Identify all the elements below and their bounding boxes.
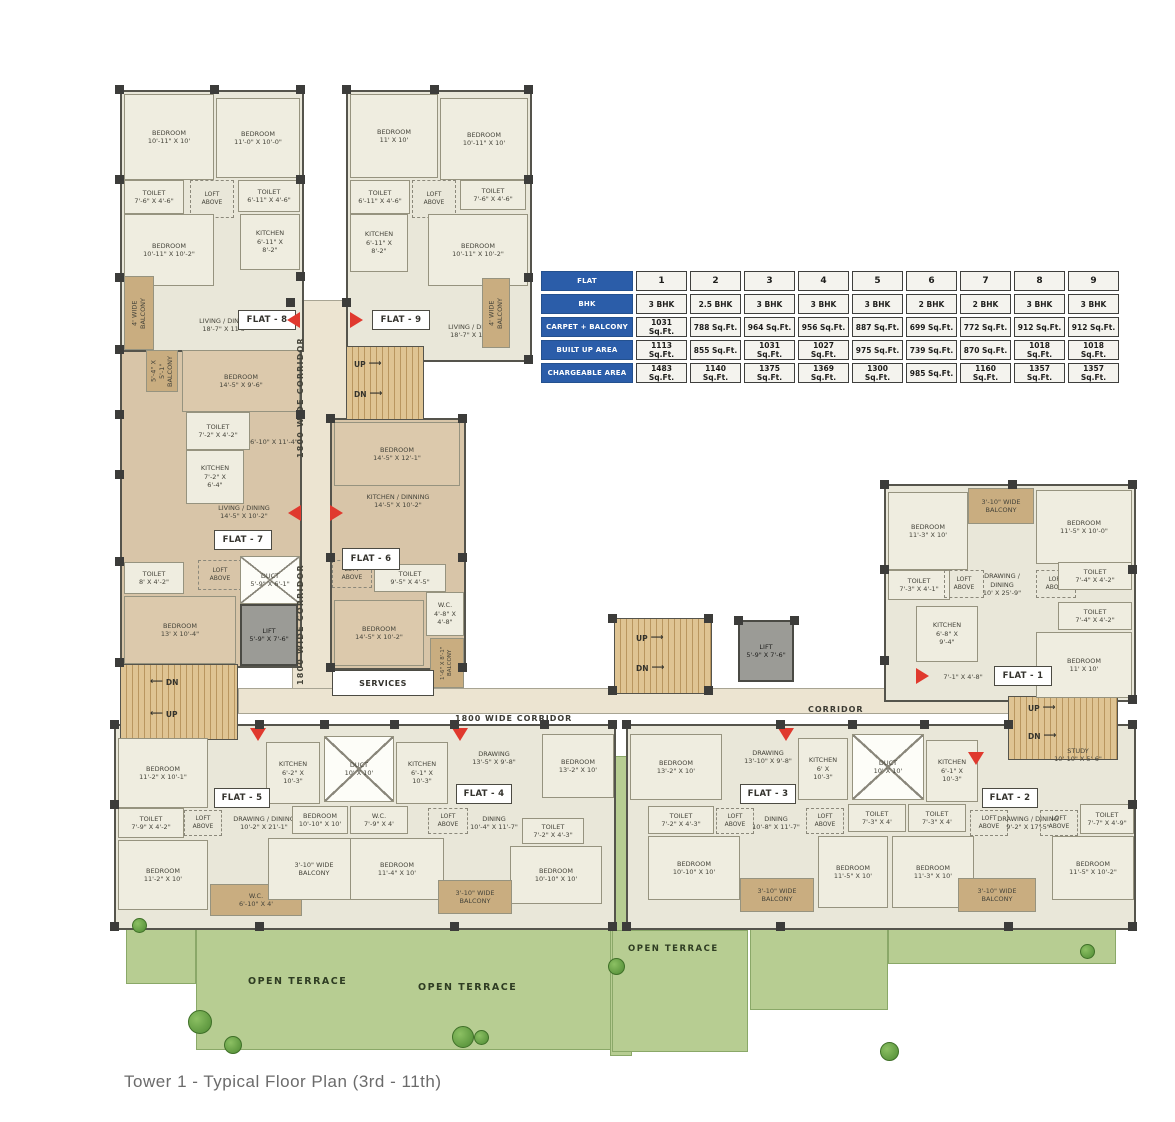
table-cell: 3 BHK — [1068, 294, 1119, 314]
entry-arrow-flat7 — [288, 505, 301, 521]
room-toilet: TOILET 7'-2" X 4'-3" — [648, 806, 714, 834]
table-cell: 1018 Sq.Ft. — [1014, 340, 1065, 360]
flat9-label: FLAT - 9 — [372, 310, 430, 330]
table-cell: 3 BHK — [852, 294, 903, 314]
table-cell: 1369 Sq.Ft. — [798, 363, 849, 383]
tree-icon — [474, 1030, 489, 1045]
wall-column — [608, 720, 617, 729]
stair-up-label: UP⟶ — [1028, 704, 1056, 713]
corridor-label-vertical: 1800 WIDE CORRIDOR — [296, 330, 305, 465]
table-cell: 788 Sq.Ft. — [690, 317, 741, 337]
arrow-right-icon: ⟶ — [651, 634, 664, 643]
room-dimension: 7'-1" X 4'-8" — [934, 670, 992, 684]
room-bedroom: BEDROOM 11' X 10' — [350, 94, 438, 178]
room-bedroom: BEDROOM 13'-2" X 10' — [630, 734, 722, 800]
wall-column — [540, 720, 549, 729]
entry-arrow-flat4 — [452, 728, 468, 741]
wall-column — [110, 922, 119, 931]
room-bedroom: BEDROOM 11'-0" X 10'-0" — [216, 98, 300, 178]
room-wc: BEDROOM 10'-10" X 10' — [292, 806, 348, 834]
open-terrace-label: OPEN TERRACE — [248, 976, 347, 987]
wall-column — [1128, 480, 1137, 489]
room-toilet: TOILET 8' X 4'-2" — [124, 562, 184, 594]
wall-column — [115, 345, 124, 354]
table-cell: 699 Sq.Ft. — [906, 317, 957, 337]
corridor-label-horizontal: 1800 WIDE CORRIDOR — [455, 714, 572, 723]
wall-column — [880, 656, 889, 665]
table-cell: 1300 Sq.Ft. — [852, 363, 903, 383]
stair-dn-label: DN⟶ — [636, 664, 664, 673]
wall-column — [1128, 720, 1137, 729]
table-header-cell: 5 — [852, 271, 903, 291]
wall-column — [115, 557, 124, 566]
wall-column — [110, 800, 119, 809]
flat1-label: FLAT - 1 — [994, 666, 1052, 686]
table-cell: 3 BHK — [636, 294, 687, 314]
table-cell: 1113 Sq.Ft. — [636, 340, 687, 360]
table-cell: 855 Sq.Ft. — [690, 340, 741, 360]
table-cell: 3 BHK — [1014, 294, 1065, 314]
room-bedroom: BEDROOM 11' X 10' — [1036, 632, 1132, 698]
arrow-right-icon: ⟶ — [369, 360, 382, 369]
stair-dn-label: DN⟶ — [354, 390, 382, 399]
room-bedroom: BEDROOM 13'-2" X 10' — [542, 734, 614, 798]
wall-column — [734, 616, 743, 625]
open-terrace-area — [750, 918, 888, 1010]
table-row-chargeable: CHARGEABLE AREA 1483 Sq.Ft. 1140 Sq.Ft. … — [541, 363, 1119, 383]
wall-column — [880, 480, 889, 489]
table-row-builtup: BUILT UP AREA 1113 Sq.Ft. 855 Sq.Ft. 103… — [541, 340, 1119, 360]
wall-column — [342, 85, 351, 94]
corridor-label-vertical: 1800 WIDE CORRIDOR — [296, 555, 305, 695]
staircase-left — [120, 664, 238, 740]
room-bedroom: BEDROOM 11'-4" X 10' — [350, 838, 444, 900]
wall-column — [115, 175, 124, 184]
wall-column — [1004, 922, 1013, 931]
entry-arrow-flat8 — [287, 312, 300, 328]
room-toilet: TOILET 7'-6" X 4'-6" — [460, 180, 526, 210]
flat3-label: FLAT - 3 — [740, 784, 796, 804]
room-bedroom: BEDROOM 14'-5" X 10'-2" — [334, 600, 424, 666]
loft-above: LOFT ABOVE — [190, 180, 234, 218]
stair-up-label: ⟵UP — [150, 710, 178, 719]
room-balcony: 3'-10" WIDE BALCONY — [740, 878, 814, 912]
table-header-cell: 7 — [960, 271, 1011, 291]
table-header-row: FLAT 1 2 3 4 5 6 7 8 9 — [541, 271, 1119, 291]
lift-central: LIFT 5'-9" X 7'-6" — [738, 620, 794, 682]
wall-column — [622, 720, 631, 729]
wall-column — [115, 410, 124, 419]
room-bedroom: BEDROOM 11'-5" X 10' — [818, 836, 888, 908]
wall-column — [524, 85, 533, 94]
table-header-cell: 9 — [1068, 271, 1119, 291]
wall-column — [255, 720, 264, 729]
stair-dn-label: DN⟶ — [1028, 732, 1056, 741]
flat6-label: FLAT - 6 — [342, 548, 400, 570]
tree-icon — [1080, 944, 1095, 959]
stair-up-label: UP⟶ — [636, 634, 664, 643]
tree-icon — [188, 1010, 212, 1034]
table-cell: 1357 Sq.Ft. — [1068, 363, 1119, 383]
room-bedroom: BEDROOM 11'-5" X 10'-2" — [1052, 836, 1134, 900]
tree-icon — [608, 958, 625, 975]
room-balcony: 3'-10" WIDE BALCONY — [958, 878, 1036, 912]
room-toilet: TOILET 7'-2" X 4'-2" — [186, 412, 250, 450]
wall-column — [286, 298, 295, 307]
room-bedroom: BEDROOM 10'-11" X 10' — [440, 98, 528, 180]
table-cell: 912 Sq.Ft. — [1068, 317, 1119, 337]
wall-column — [608, 922, 617, 931]
room-bedroom: 3'-10" WIDE BALCONY — [268, 838, 360, 900]
wall-column — [1128, 922, 1137, 931]
room-bedroom: BEDROOM 10'-10" X 10' — [510, 846, 602, 904]
room-toilet: TOILET 7'-3" X 4'-1" — [888, 570, 950, 600]
table-cell: 1483 Sq.Ft. — [636, 363, 687, 383]
wall-column — [880, 565, 889, 574]
arrow-right-icon: ⟶ — [1043, 704, 1056, 713]
entry-arrow-flat1 — [916, 668, 929, 684]
room-kitchen: KITCHEN 6'-1" X 10'-3" — [396, 742, 448, 804]
flat5-label: FLAT - 5 — [214, 788, 270, 808]
table-row-label: CHARGEABLE AREA — [541, 363, 633, 383]
lift: LIFT 5'-9" X 7'-6" — [240, 604, 298, 666]
loft-above: LOFT ABOVE — [806, 808, 844, 834]
room-bedroom: BEDROOM 10'-10" X 10' — [648, 836, 740, 900]
up-label: UP — [354, 360, 366, 369]
dn-label: DN — [636, 664, 649, 673]
table-cell: 870 Sq.Ft. — [960, 340, 1011, 360]
wall-column — [776, 720, 785, 729]
wall-column — [1004, 720, 1013, 729]
table-cell: 1375 Sq.Ft. — [744, 363, 795, 383]
table-row-label: CARPET + BALCONY — [541, 317, 633, 337]
dn-label: DN — [354, 390, 367, 399]
room-dimension: 6'-10" X 11'-4" — [248, 428, 300, 456]
stair-dn-label: ⟵DN — [150, 678, 178, 687]
table-cell: 975 Sq.Ft. — [852, 340, 903, 360]
flat7-label: FLAT - 7 — [214, 530, 272, 550]
room-bedroom: BEDROOM 10'-11" X 10'-2" — [428, 214, 528, 286]
room-balcony: 3'-10" WIDE BALCONY — [438, 880, 512, 914]
wall-column — [1128, 800, 1137, 809]
room-kitchen: KITCHEN 6'-8" X 9'-4" — [916, 606, 978, 662]
wall-column — [326, 663, 335, 672]
table-cell: 739 Sq.Ft. — [906, 340, 957, 360]
room-wc: W.C. 4'-8" X 4'-8" — [426, 592, 464, 636]
table-row-label: BUILT UP AREA — [541, 340, 633, 360]
wall-column — [608, 614, 617, 623]
wall-column — [1128, 695, 1137, 704]
wall-column — [326, 414, 335, 423]
room-bedroom: BEDROOM 11'-5" X 10'-0" — [1036, 490, 1132, 564]
staircase-central — [614, 618, 712, 694]
room-bedroom: BEDROOM 11'-2" X 10' — [118, 840, 208, 910]
wall-column — [296, 410, 305, 419]
room-toilet: TOILET 7'-4" X 4'-2" — [1058, 602, 1132, 630]
stair-up-label: UP⟶ — [354, 360, 382, 369]
plan-caption: Tower 1 - Typical Floor Plan (3rd - 11th… — [124, 1072, 442, 1092]
wall-column — [296, 175, 305, 184]
floor-plan-canvas: OPEN TERRACE OPEN TERRACE OPEN TERRACE O… — [0, 0, 1175, 1122]
duct: DUCT 10' X 10' — [852, 734, 924, 800]
table-cell: 1140 Sq.Ft. — [690, 363, 741, 383]
tree-icon — [880, 1042, 899, 1061]
room-toilet: TOILET 7'-3" X 4' — [908, 804, 966, 832]
table-header-cell: 6 — [906, 271, 957, 291]
wall-column — [1008, 480, 1017, 489]
room-living-dining: LIVING / DINING 18'-7" X 11'-4" — [420, 316, 528, 346]
table-cell: 985 Sq.Ft. — [906, 363, 957, 383]
entry-arrow-flat2 — [968, 752, 984, 765]
room-toilet: TOILET 7'-3" X 4' — [848, 804, 906, 832]
room-kitchen: KITCHEN 6'-2" X 10'-3" — [266, 742, 320, 804]
wall-column — [430, 85, 439, 94]
room-toilet: TOILET 6'-11" X 4'-6" — [350, 180, 410, 214]
arrow-right-icon: ⟶ — [1044, 732, 1057, 741]
open-terrace-label: OPEN TERRACE — [418, 982, 517, 993]
wall-column — [704, 614, 713, 623]
table-corner: FLAT — [541, 271, 633, 291]
wall-column — [458, 663, 467, 672]
table-header-cell: 1 — [636, 271, 687, 291]
duct: DUCT 5'-9" X 6'-1" — [240, 556, 300, 604]
dn-label: DN — [1028, 732, 1041, 741]
duct: DUCT 10' X 10' — [324, 736, 394, 802]
wall-column — [848, 720, 857, 729]
up-label: UP — [636, 634, 648, 643]
table-cell: 1357 Sq.Ft. — [1014, 363, 1065, 383]
wall-column — [110, 720, 119, 729]
room-kitchen: KITCHEN 7'-2" X 6'-4" — [186, 450, 244, 504]
arrow-right-icon: ⟶ — [370, 390, 383, 399]
room-toilet: TOILET 6'-11" X 4'-6" — [238, 180, 300, 212]
room-bedroom: BEDROOM 14'-5" X 9'-6" — [182, 350, 300, 412]
wall-column — [524, 175, 533, 184]
wall-column — [608, 686, 617, 695]
room-study: STUDY 10'-10" X 5'-6" — [1034, 742, 1122, 768]
arrow-left-icon: ⟵ — [150, 678, 163, 687]
table-header-cell: 4 — [798, 271, 849, 291]
tree-icon — [132, 918, 147, 933]
arrow-right-icon: ⟶ — [652, 664, 665, 673]
services-room: SERVICES — [332, 670, 434, 696]
room-kitchen: KITCHEN 6'-11" X 8'-2" — [240, 214, 300, 270]
wall-column — [524, 273, 533, 282]
wall-column — [326, 553, 335, 562]
table-cell: 2 BHK — [960, 294, 1011, 314]
table-cell: 1027 Sq.Ft. — [798, 340, 849, 360]
wall-column — [622, 922, 631, 931]
wall-column — [790, 616, 799, 625]
staircase-mid-top — [346, 346, 424, 420]
table-cell: 2.5 BHK — [690, 294, 741, 314]
wall-column — [458, 414, 467, 423]
table-cell: 2 BHK — [906, 294, 957, 314]
wall-column — [115, 658, 124, 667]
room-balcony: 4' WIDE BALCONY — [124, 276, 154, 350]
wall-column — [255, 922, 264, 931]
wall-column — [390, 720, 399, 729]
table-cell: 1018 Sq.Ft. — [1068, 340, 1119, 360]
wall-column — [115, 470, 124, 479]
room-bedroom: BEDROOM 13' X 10'-4" — [124, 596, 236, 664]
wall-column — [920, 720, 929, 729]
entry-arrow-flat5 — [250, 728, 266, 741]
room-balcony: 5'-4" X 5'-1" BALCONY — [146, 350, 178, 392]
entry-arrow-flat3 — [778, 728, 794, 741]
table-cell: 1031 Sq.Ft. — [744, 340, 795, 360]
flat2-label: FLAT - 2 — [982, 788, 1038, 808]
wall-column — [450, 720, 459, 729]
table-cell: 3 BHK — [798, 294, 849, 314]
flat4-label: FLAT - 4 — [456, 784, 512, 804]
wall-column — [210, 85, 219, 94]
table-cell: 1031 Sq.Ft. — [636, 317, 687, 337]
room-toilet: TOILET 7'-7" X 4'-9" — [1080, 804, 1134, 834]
entry-arrow-flat6 — [330, 505, 343, 521]
table-header-cell: 8 — [1014, 271, 1065, 291]
room-toilet: TOILET 7'-9" X 4'-2" — [118, 808, 184, 838]
table-row-carpet: CARPET + BALCONY 1031 Sq.Ft. 788 Sq.Ft. … — [541, 317, 1119, 337]
table-cell: 772 Sq.Ft. — [960, 317, 1011, 337]
loft-above: LOFT ABOVE — [198, 560, 242, 590]
table-cell: 964 Sq.Ft. — [744, 317, 795, 337]
entry-arrow-flat9 — [350, 312, 363, 328]
wall-column — [296, 272, 305, 281]
room-kitchen: KITCHEN 6' X 10'-3" — [798, 738, 848, 800]
room-toilet: TOILET 7'-2" X 4'-3" — [522, 818, 584, 844]
flat-data-table: FLAT 1 2 3 4 5 6 7 8 9 BHK 3 BHK 2.5 BHK… — [538, 268, 1122, 386]
wall-column — [1128, 565, 1137, 574]
room-bedroom: BEDROOM 14'-5" X 12'-1" — [334, 422, 460, 486]
wall-column — [115, 85, 124, 94]
wall-column — [115, 273, 124, 282]
table-cell: 1160 Sq.Ft. — [960, 363, 1011, 383]
dn-label: DN — [166, 678, 179, 687]
open-terrace-label: OPEN TERRACE — [628, 944, 719, 954]
room-living-dining: LIVING / DINING 14'-5" X 10'-2" — [190, 498, 298, 526]
table-cell: 956 Sq.Ft. — [798, 317, 849, 337]
room-wc: W.C. 7'-9" X 4' — [350, 806, 408, 834]
loft-above: LOFT ABOVE — [1040, 810, 1078, 836]
wall-column — [458, 553, 467, 562]
table-header-cell: 2 — [690, 271, 741, 291]
wall-column — [524, 355, 533, 364]
wall-column — [342, 298, 351, 307]
wall-column — [320, 720, 329, 729]
wall-column — [704, 686, 713, 695]
table-cell: 887 Sq.Ft. — [852, 317, 903, 337]
room-kitchen-dining: KITCHEN / DINNING 14'-5" X 10'-2" — [334, 488, 462, 514]
room-kitchen: KITCHEN 6'-1" X 10'-3" — [926, 740, 978, 802]
room-kitchen: KITCHEN 6'-11" X 8'-2" — [350, 214, 408, 272]
table-row-bhk: BHK 3 BHK 2.5 BHK 3 BHK 3 BHK 3 BHK 2 BH… — [541, 294, 1119, 314]
room-balcony: 4' WIDE BALCONY — [482, 278, 510, 348]
table-row-label: BHK — [541, 294, 633, 314]
room-balcony: 3'-10" WIDE BALCONY — [968, 488, 1034, 524]
corridor-label: CORRIDOR — [808, 705, 864, 714]
tree-icon — [452, 1026, 474, 1048]
up-label: UP — [166, 710, 178, 719]
room-toilet: TOILET 7'-4" X 4'-2" — [1058, 562, 1132, 590]
room-bedroom: BEDROOM 10'-11" X 10' — [124, 94, 214, 180]
arrow-left-icon: ⟵ — [150, 710, 163, 719]
room-bedroom: BEDROOM 11'-2" X 10'-1" — [118, 738, 208, 808]
wall-column — [296, 85, 305, 94]
table-header-cell: 3 — [744, 271, 795, 291]
wall-column — [776, 922, 785, 931]
up-label: UP — [1028, 704, 1040, 713]
loft-above: LOFT ABOVE — [412, 180, 456, 218]
table-cell: 3 BHK — [744, 294, 795, 314]
room-bedroom: BEDROOM 11'-3" X 10' — [888, 492, 968, 570]
room-drawing-dining: DRAWING / DINING 10' X 25'-9" — [966, 562, 1038, 608]
table-cell: 912 Sq.Ft. — [1014, 317, 1065, 337]
wall-column — [450, 922, 459, 931]
tree-icon — [224, 1036, 242, 1054]
room-toilet: TOILET 7'-6" X 4'-6" — [124, 180, 184, 214]
room-drawing: DRAWING 13'-5" X 9'-8" — [452, 744, 536, 772]
